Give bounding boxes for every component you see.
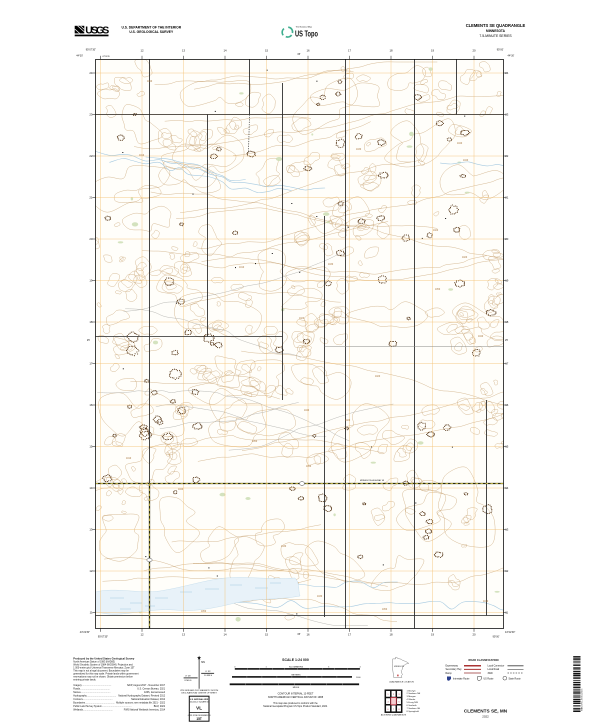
svg-text:16: 16: [306, 632, 310, 636]
svg-text:ADJOINING QUADRANGLES: ADJOINING QUADRANGLES: [381, 713, 407, 716]
svg-text:95°00': 95°00': [497, 49, 504, 52]
svg-text:12: 12: [505, 569, 509, 573]
svg-text:24: 24: [505, 71, 509, 75]
svg-text:4 Wanda: 4 Wanda: [407, 699, 416, 701]
svg-text:..GNIS, last accessed: ..GNIS, last accessed: [143, 691, 166, 694]
svg-text:ISBN 978-1-6339-1234-5: ISBN 978-1-6339-1234-5: [582, 688, 584, 711]
svg-text:12: 12: [140, 632, 144, 636]
svg-text:QUADRANGLE LOCATION: QUADRANGLE LOCATION: [389, 680, 414, 683]
svg-text:State Route: State Route: [509, 677, 522, 680]
svg-text:17: 17: [348, 632, 352, 636]
svg-text:Names.........................: Names...................................…: [73, 692, 110, 694]
svg-text:1030: 1030: [317, 596, 323, 598]
svg-text:Boundaries....................: Boundaries..............................…: [73, 702, 115, 705]
svg-text:44°30': 44°30': [76, 55, 83, 58]
svg-text:95°00': 95°00': [493, 636, 500, 639]
svg-text:Expressway: Expressway: [446, 665, 459, 668]
svg-text:13: 13: [89, 528, 93, 532]
svg-text:16: 16: [505, 403, 509, 407]
svg-text:11: 11: [90, 611, 93, 615]
svg-text:17: 17: [505, 362, 509, 366]
svg-text:17: 17: [89, 362, 93, 366]
svg-text:Secondary Hwy: Secondary Hwy: [446, 668, 463, 671]
svg-text:100,000-m SQUARE ID: 100,000-m SQUARE ID: [190, 701, 210, 704]
svg-text:8 Springfield: 8 Springfield: [407, 710, 420, 713]
svg-text:7.5-MINUTE SERIES: 7.5-MINUTE SERIES: [479, 34, 512, 38]
svg-text:10 MILS: 10 MILS: [204, 675, 213, 677]
svg-text:16: 16: [306, 48, 310, 52]
svg-text:1040: 1040: [457, 143, 463, 145]
svg-text:1050: 1050: [382, 609, 388, 611]
svg-text:95°07'30": 95°07'30": [86, 49, 96, 52]
svg-text:reservations may not be shown.: reservations may not be shown. Obtain pe…: [73, 676, 133, 679]
svg-text:Roads.........................: Roads...................................…: [73, 689, 110, 691]
svg-text:1 000-meter grid: Universal Tr: 1 000-meter grid: Universal Transverse M…: [73, 667, 135, 670]
svg-text:MILES: MILES: [293, 687, 300, 689]
svg-text:19: 19: [431, 632, 435, 636]
svg-text:NORTH AMERICAN VERTICAL DATUM: NORTH AMERICAN VERTICAL DATUM OF 1988: [268, 696, 324, 699]
svg-text:15: 15: [505, 445, 509, 449]
svg-text:1020: 1020: [375, 376, 381, 378]
svg-text:North American Datum of 1983 (: North American Datum of 1983 (NAD83): [73, 661, 115, 664]
svg-text:MINNESOTA HIGHWAY 68: MINNESOTA HIGHWAY 68: [360, 479, 385, 482]
svg-text:DECLINATION AT CENTER OF SHEET: DECLINATION AT CENTER OF SHEET: [181, 692, 217, 695]
svg-text:Interstate Route: Interstate Route: [453, 677, 470, 680]
svg-text:1030: 1030: [281, 546, 287, 548]
svg-text:14: 14: [505, 486, 509, 490]
svg-text:Contours......................: Contours................................…: [73, 698, 113, 701]
svg-text:0° 28': 0° 28': [185, 676, 191, 678]
svg-text:4: 4: [359, 667, 361, 669]
svg-text:National Geospatial Program US: National Geospatial Program US Topo Prod…: [263, 705, 328, 708]
svg-text:1050: 1050: [435, 289, 441, 291]
svg-text:18: 18: [505, 320, 509, 324]
svg-text:47'30"E: 47'30"E: [102, 56, 110, 58]
svg-text:5 Essig NW: 5 Essig NW: [407, 702, 419, 704]
svg-text:The National Map: The National Map: [296, 26, 313, 29]
svg-text:1010: 1010: [139, 155, 145, 157]
svg-text:This map was produced to confo: This map was produced to conform with th…: [273, 702, 318, 705]
svg-text:1030: 1030: [328, 264, 334, 266]
svg-text:05': 05': [297, 633, 301, 636]
svg-text:1040: 1040: [178, 489, 184, 491]
svg-text:3: 3: [398, 694, 400, 696]
svg-text:generalized for this map scale: generalized for this map scale. Private …: [73, 673, 139, 676]
svg-text:Local Road: Local Road: [488, 669, 500, 671]
svg-text:1 Bechyn: 1 Bechyn: [407, 690, 417, 692]
svg-text:MINNESOTA: MINNESOTA: [394, 665, 405, 668]
svg-text:1010: 1010: [126, 458, 132, 460]
svg-text:22: 22: [89, 154, 93, 158]
svg-text:21: 21: [505, 196, 509, 200]
svg-text:..NAIP, August 2017 - November: ..NAIP, August 2017 - November 2017: [126, 684, 166, 687]
svg-text:US Topo: US Topo: [295, 28, 318, 38]
svg-text:US Route: US Route: [484, 677, 495, 680]
svg-text:18: 18: [389, 632, 393, 636]
svg-text:2022: 2022: [482, 714, 489, 718]
svg-text:19: 19: [89, 279, 93, 283]
svg-text:1010: 1010: [483, 601, 489, 603]
svg-text:7: 7: [393, 709, 395, 711]
svg-text:15: 15: [265, 632, 269, 636]
svg-text:18: 18: [89, 320, 93, 324]
svg-text:15: 15: [89, 445, 93, 449]
svg-text:25': 25': [87, 339, 91, 342]
svg-text:1030: 1030: [356, 149, 362, 151]
svg-text:4: 4: [387, 702, 389, 704]
svg-text:Public Land Survey System.....: Public Land Survey System...............…: [73, 705, 132, 708]
svg-text:44°22'30": 44°22'30": [505, 631, 515, 634]
svg-text:24: 24: [89, 71, 93, 75]
svg-text:..FWS National Wetlands Invent: ..FWS National Wetlands Inventory, 2014: [123, 709, 166, 712]
svg-text:44°22'30": 44°22'30": [80, 631, 90, 634]
svg-text:22: 22: [505, 154, 509, 158]
svg-text:..BLM, 2022: ..BLM, 2022: [152, 706, 165, 708]
svg-text:05': 05': [297, 53, 301, 56]
svg-text:5: 5: [398, 702, 400, 704]
svg-text:4WD: 4WD: [488, 673, 493, 675]
svg-text:1020: 1020: [345, 420, 351, 422]
svg-text:1010: 1010: [239, 267, 245, 269]
svg-text:19: 19: [431, 48, 435, 52]
svg-text:11: 11: [505, 611, 508, 615]
svg-text:SCALE 1:24 000: SCALE 1:24 000: [282, 658, 309, 662]
svg-text:15: 15: [265, 48, 269, 52]
svg-text:23: 23: [505, 113, 509, 117]
svg-text:Hydrography...................: Hydrography.............................…: [73, 695, 116, 698]
svg-text:25': 25': [505, 339, 509, 342]
svg-text:Ramp: Ramp: [446, 673, 453, 675]
svg-text:12: 12: [89, 569, 93, 573]
svg-text:13: 13: [182, 632, 186, 636]
svg-text:1050: 1050: [201, 611, 207, 613]
svg-text:2 Sanborn NE: 2 Sanborn NE: [407, 692, 421, 695]
svg-text:MN: MN: [201, 661, 205, 664]
svg-text:..Multiple sources; see metada: ..Multiple sources; see metadata file 20…: [115, 702, 166, 705]
svg-text:Wetlands......................: Wetlands................................…: [73, 709, 113, 712]
svg-text:..U.S. Census Bureau, 2021: ..U.S. Census Bureau, 2021: [136, 688, 166, 691]
svg-text:1040: 1040: [463, 160, 469, 162]
svg-text:12: 12: [140, 48, 144, 52]
svg-text:17: 17: [348, 48, 352, 52]
svg-text:..National Hydrography Dataset: ..National Hydrography Dataset, Revised …: [117, 695, 166, 698]
svg-text:6 Seaforth: 6 Seaforth: [407, 704, 418, 707]
svg-text:CLEMENTS SE, MN: CLEMENTS SE, MN: [464, 708, 508, 713]
svg-text:23: 23: [89, 113, 93, 117]
svg-text:1020: 1020: [299, 318, 305, 320]
svg-text:1020: 1020: [462, 257, 468, 259]
svg-text:20: 20: [89, 237, 93, 241]
svg-text:6: 6: [387, 709, 389, 711]
svg-text:Local Connector: Local Connector: [488, 665, 505, 668]
svg-text:20: 20: [505, 237, 509, 241]
svg-text:20: 20: [472, 48, 476, 52]
svg-text:1: 1: [387, 694, 389, 696]
svg-text:U.S. NATIONAL GRID: U.S. NATIONAL GRID: [190, 698, 209, 701]
svg-text:World Geodetic System of 1984: World Geodetic System of 1984 (WGS84). P…: [73, 664, 133, 667]
svg-text:This map is not a legal docume: This map is not a legal document. Bounda…: [73, 670, 129, 673]
svg-text:1000: 1000: [356, 677, 361, 679]
svg-text:14: 14: [223, 632, 227, 636]
svg-text:CLEMENTS SE QUADRANGLE: CLEMENTS SE QUADRANGLE: [466, 23, 526, 28]
svg-text:13: 13: [182, 48, 186, 52]
svg-text:8: 8: [398, 709, 400, 711]
svg-text:20: 20: [472, 632, 476, 636]
svg-text:21: 21: [89, 196, 93, 200]
svg-text:16: 16: [89, 403, 93, 407]
svg-text:8 MILS: 8 MILS: [185, 680, 192, 682]
svg-text:1040: 1040: [478, 336, 484, 338]
svg-text:0° 35': 0° 35': [205, 671, 211, 673]
svg-text:1050: 1050: [306, 466, 312, 468]
svg-text:3 Morgan: 3 Morgan: [407, 695, 417, 698]
svg-text:14: 14: [223, 48, 227, 52]
svg-text:MINNESOTA: MINNESOTA: [486, 29, 506, 33]
svg-text:1020: 1020: [433, 230, 439, 232]
svg-text:VL: VL: [196, 706, 202, 711]
svg-text:14: 14: [89, 486, 93, 490]
svg-text:44°30': 44°30': [508, 55, 515, 58]
svg-text:15T: 15T: [196, 717, 202, 721]
svg-text:1040: 1040: [147, 81, 153, 83]
svg-text:1050: 1050: [252, 441, 258, 443]
svg-text:entering private lands.: entering private lands.: [73, 679, 96, 682]
svg-text:ROAD CLASSIFICATION: ROAD CLASSIFICATION: [469, 658, 499, 662]
svg-text:Produced by the United States: Produced by the United States Geological…: [73, 656, 135, 660]
svg-text:19: 19: [505, 279, 509, 283]
svg-text:18: 18: [389, 48, 393, 52]
svg-text:7 Sanborn SE: 7 Sanborn SE: [407, 707, 421, 710]
svg-text:13: 13: [505, 528, 509, 532]
svg-text:..National Elevation Dataset,: ..National Elevation Dataset, 2012: [130, 698, 166, 701]
svg-text:Imagery.......................: Imagery.................................…: [73, 684, 111, 687]
svg-text:1040: 1040: [304, 410, 310, 412]
svg-text:95°07'30": 95°07'30": [98, 636, 108, 639]
svg-text:2: 2: [393, 694, 395, 696]
svg-text:U.S. GEOLOGICAL SURVEY: U.S. GEOLOGICAL SURVEY: [129, 30, 174, 34]
